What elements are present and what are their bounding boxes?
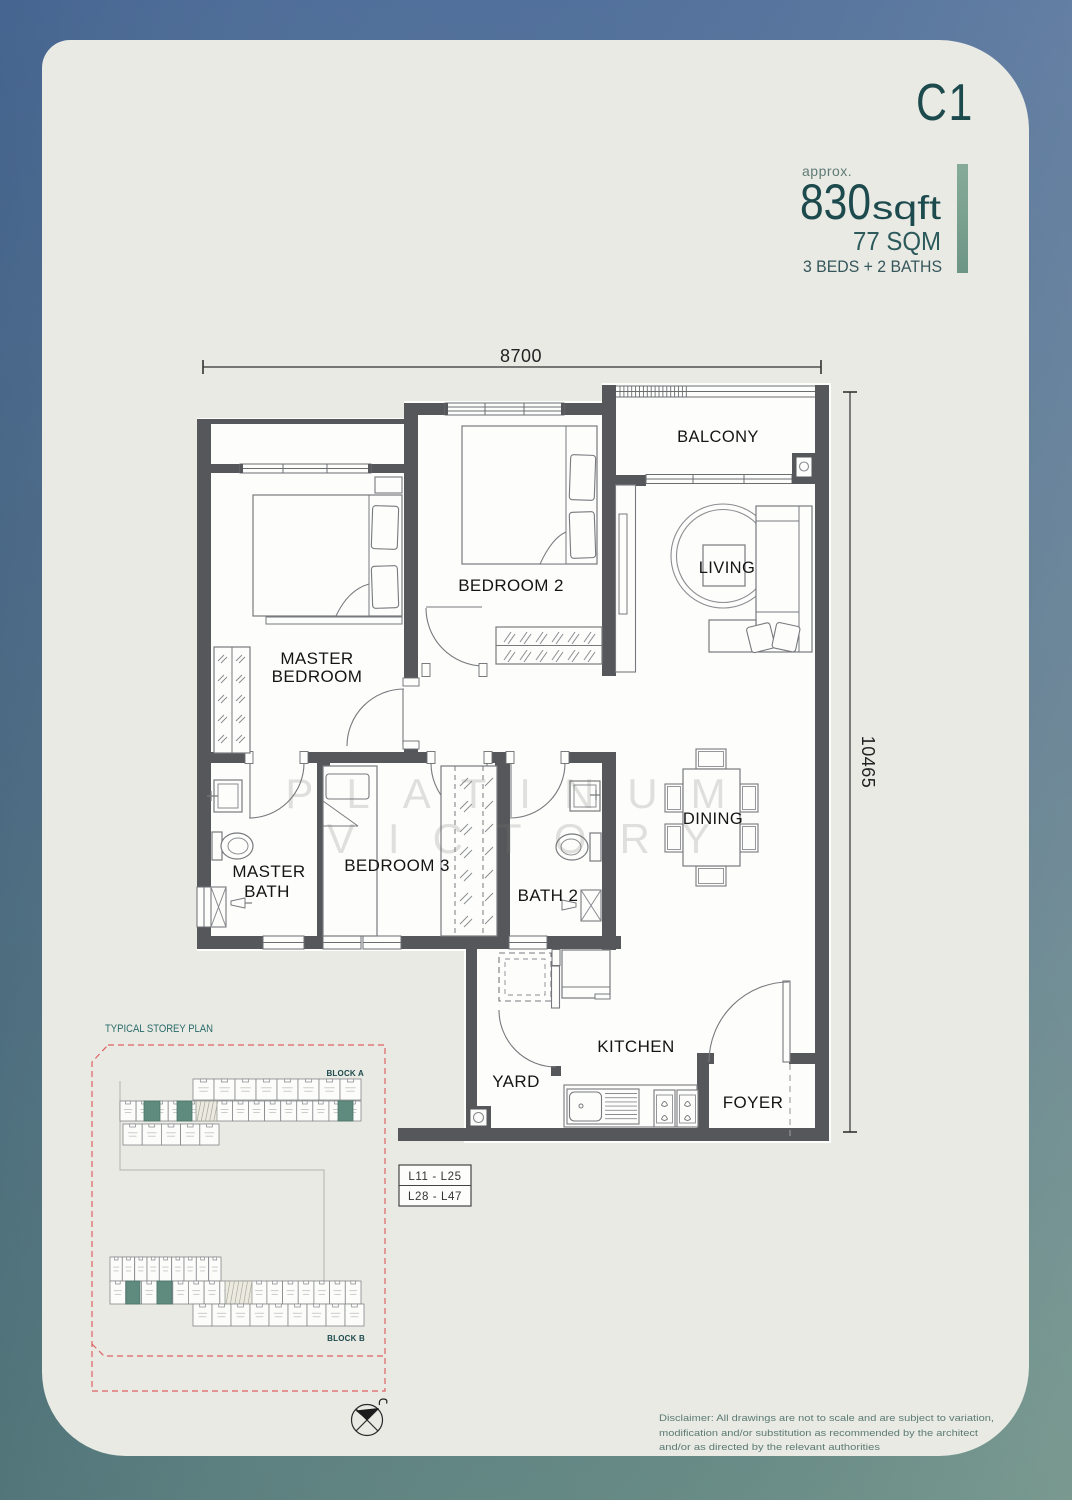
svg-text:TYPICAL STOREY PLAN: TYPICAL STOREY PLAN	[105, 1023, 213, 1035]
svg-text:LIVING: LIVING	[699, 559, 756, 577]
svg-text:BLOCK A: BLOCK A	[326, 1069, 364, 1078]
svg-text:BALCONY: BALCONY	[677, 428, 759, 446]
svg-text:C1: C1	[916, 74, 974, 132]
svg-text:Disclaimer: All drawings are n: Disclaimer: All drawings are not to scal…	[659, 1413, 994, 1424]
svg-text:77 SQM: 77 SQM	[853, 226, 941, 256]
svg-text:VICTORY: VICTORY	[327, 815, 743, 862]
svg-text:FOYER: FOYER	[723, 1093, 784, 1112]
svg-text:BEDROOM: BEDROOM	[272, 667, 363, 686]
svg-text:sqft: sqft	[872, 189, 941, 226]
svg-text:BATH: BATH	[244, 882, 290, 901]
svg-text:L28 - L47: L28 - L47	[408, 1191, 462, 1203]
svg-text:modification and/or substituti: modification and/or substitution as reco…	[659, 1428, 978, 1439]
svg-text:L11 - L25: L11 - L25	[408, 1171, 461, 1183]
svg-text:BATH 2: BATH 2	[518, 886, 579, 905]
svg-text:BEDROOM 2: BEDROOM 2	[458, 576, 564, 595]
svg-text:MASTER: MASTER	[232, 862, 305, 881]
svg-text:and/or as directed by the rele: and/or as directed by the relevant autho…	[659, 1442, 880, 1453]
svg-text:MASTER: MASTER	[280, 649, 353, 668]
svg-text:3 BEDS + 2 BATHS: 3 BEDS + 2 BATHS	[803, 258, 942, 276]
svg-text:BLOCK B: BLOCK B	[327, 1334, 365, 1343]
svg-text:830: 830	[800, 174, 871, 230]
svg-text:10465: 10465	[858, 736, 878, 789]
svg-text:YARD: YARD	[492, 1072, 540, 1091]
svg-text:8700: 8700	[500, 346, 542, 366]
svg-text:PLATINUM: PLATINUM	[285, 770, 758, 817]
svg-text:KITCHEN: KITCHEN	[597, 1037, 674, 1056]
